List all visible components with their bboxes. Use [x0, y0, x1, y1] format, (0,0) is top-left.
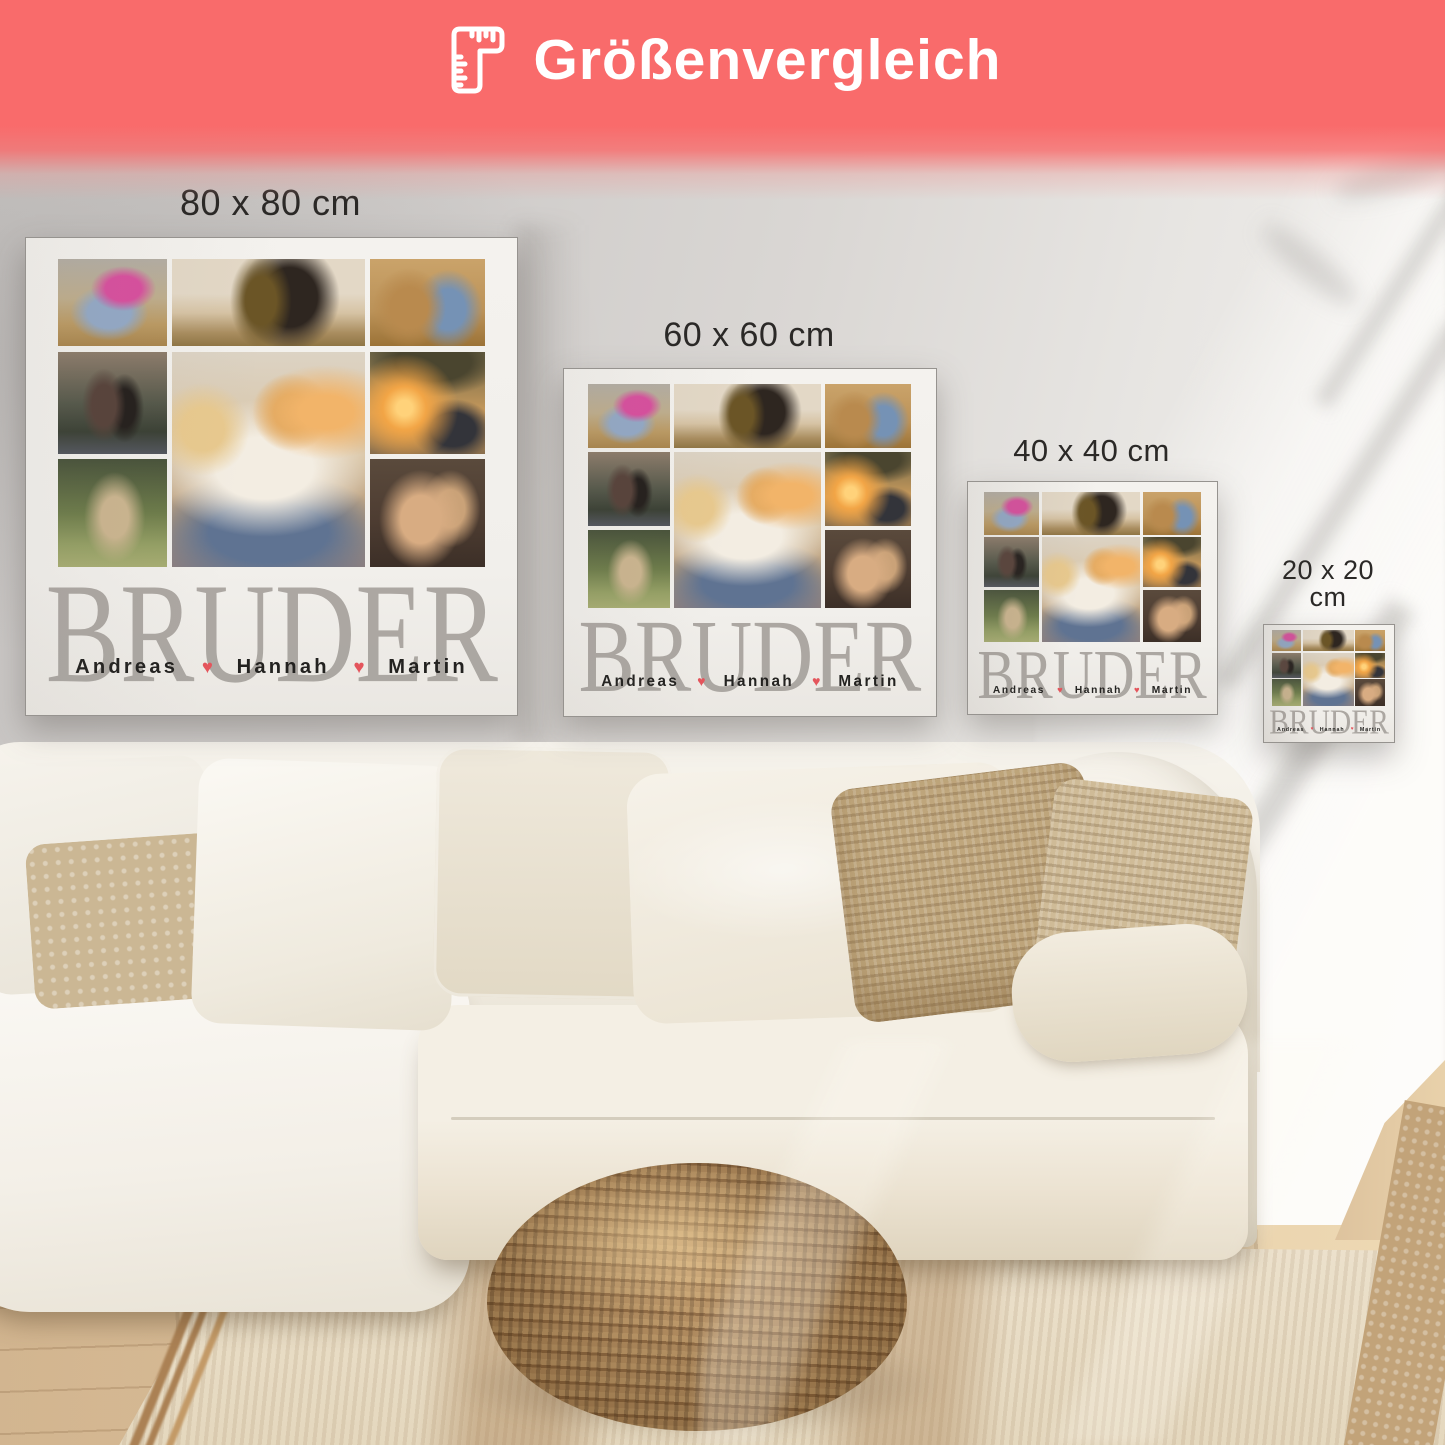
size-option-20: 20 x 20 cm BRUDER Andreas ♥ Hannah ♥ Mar… [1263, 557, 1393, 743]
collage-photo-1 [1272, 630, 1301, 651]
collage-photo-7 [1272, 679, 1301, 706]
corner-ruler-icon [444, 21, 508, 99]
name-text: Martin [1152, 685, 1192, 696]
photo-canvas-20: BRUDER Andreas ♥ Hannah ♥ Martin [1263, 624, 1395, 743]
bolster-cushion [1008, 920, 1251, 1066]
heart-icon: ♥ [1311, 728, 1314, 733]
collage-photo-8 [825, 530, 912, 609]
name-text: Andreas [601, 673, 679, 690]
heart-icon: ♥ [1351, 728, 1354, 733]
size-label: 60 x 60 cm [563, 318, 935, 352]
size-option-40: 40 x 40 cm BRUDER Andreas ♥ Hannah ♥ Mar… [967, 435, 1216, 715]
collage-photo-8 [1143, 590, 1201, 643]
collage-photo-4 [58, 352, 167, 454]
size-label: 40 x 40 cm [967, 435, 1216, 466]
collage-photo-4 [984, 537, 1039, 587]
name-text: Andreas [1277, 727, 1304, 733]
photo-canvas-40: BRUDER Andreas ♥ Hannah ♥ Martin [967, 481, 1218, 715]
collage-photo-4 [588, 452, 670, 526]
name-text: Hannah [724, 673, 795, 690]
name-text: Martin [1360, 727, 1381, 733]
header-banner: Größenvergleich [0, 0, 1445, 200]
collage-photo-3 [1143, 492, 1201, 534]
heart-icon: ♥ [202, 658, 213, 677]
collage-photo-6 [1143, 537, 1201, 587]
canvas-names: Andreas ♥ Hannah ♥ Martin [993, 677, 1192, 705]
photo-canvas-60: BRUDER Andreas ♥ Hannah ♥ Martin [563, 368, 937, 717]
collage-photo-1 [58, 259, 167, 346]
collage-photo-2 [1042, 492, 1140, 534]
size-label: 20 x 20 cm [1263, 557, 1393, 611]
collage-photo-5 [172, 352, 365, 568]
collage-photo-2 [172, 259, 365, 346]
heart-icon: ♥ [1134, 686, 1140, 695]
collage-photo-5 [674, 452, 821, 609]
collage-photo-7 [984, 590, 1039, 643]
canvas-names: Andreas ♥ Hannah ♥ Martin [75, 639, 468, 696]
wicker-pouf [487, 1163, 907, 1431]
name-text: Hannah [1320, 727, 1345, 733]
collage-photo-8 [1355, 679, 1385, 706]
photo-canvas-80: BRUDER Andreas ♥ Hannah ♥ Martin [25, 237, 518, 716]
collage-photo-6 [825, 452, 912, 526]
photo-collage [984, 492, 1200, 642]
collage-photo-5 [1303, 653, 1354, 706]
name-text: Hannah [1075, 685, 1122, 696]
heart-icon: ♥ [353, 658, 364, 677]
collage-photo-4 [1272, 653, 1301, 678]
collage-photo-2 [1303, 630, 1354, 651]
name-text: Hannah [237, 656, 330, 679]
heart-icon: ♥ [697, 674, 705, 688]
page-title: Größenvergleich [534, 14, 1002, 106]
size-option-60: 60 x 60 cm BRUDER Andreas ♥ Hannah ♥ Mar… [563, 318, 935, 717]
pillow [190, 758, 459, 1032]
name-text: Andreas [993, 685, 1045, 696]
collage-photo-6 [1355, 653, 1385, 678]
collage-photo-8 [370, 459, 484, 567]
collage-photo-7 [58, 459, 167, 567]
collage-photo-3 [1355, 630, 1385, 651]
collage-photo-5 [1042, 537, 1140, 642]
canvas-names: Andreas ♥ Hannah ♥ Martin [1277, 723, 1381, 737]
photo-collage [58, 259, 485, 567]
collage-photo-3 [370, 259, 484, 346]
header-content: Größenvergleich [0, 0, 1445, 106]
name-text: Andreas [75, 656, 178, 679]
collage-photo-2 [674, 384, 821, 447]
collage-photo-7 [588, 530, 670, 609]
name-text: Martin [388, 656, 468, 679]
size-option-80: 80 x 80 cm BRUDER Andreas ♥ Hannah ♥ Mar… [25, 185, 516, 716]
collage-photo-6 [370, 352, 484, 454]
photo-collage [1272, 630, 1385, 706]
heart-icon: ♥ [812, 674, 820, 688]
collage-photo-1 [984, 492, 1039, 534]
photo-collage [588, 384, 911, 608]
name-text: Martin [838, 673, 898, 690]
collage-photo-3 [825, 384, 912, 447]
heart-icon: ♥ [1057, 686, 1063, 695]
size-comparison-scene: 80 x 80 cm BRUDER Andreas ♥ Hannah ♥ Mar… [0, 0, 1445, 1445]
canvas-names: Andreas ♥ Hannah ♥ Martin [601, 660, 899, 702]
collage-photo-1 [588, 384, 670, 447]
